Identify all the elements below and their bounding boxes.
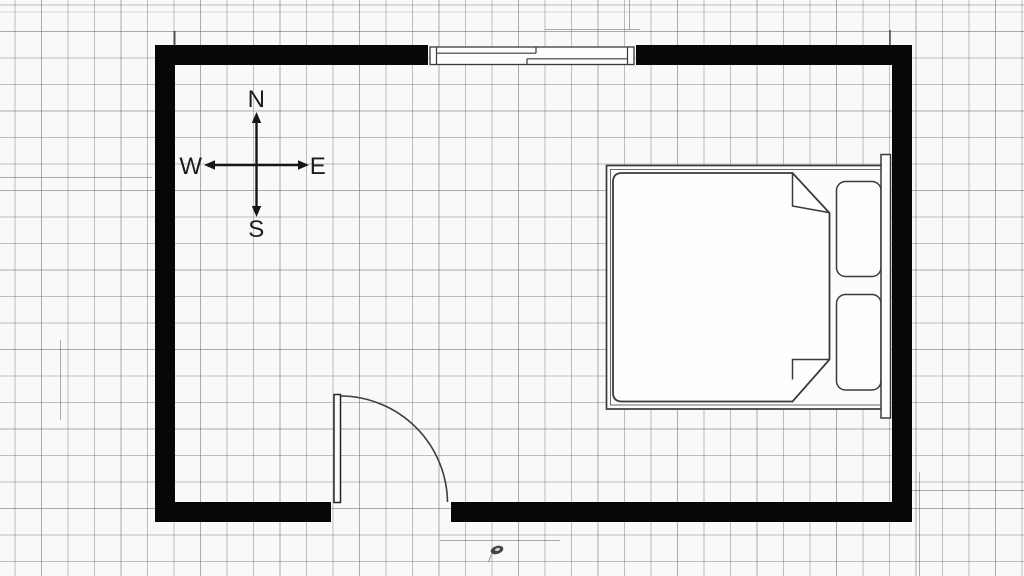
compass-label-north: N <box>248 86 266 113</box>
compass-arrow-east <box>298 160 309 169</box>
door-leaf <box>334 395 341 503</box>
wall-south-east-segment <box>451 502 912 522</box>
pillow-lower <box>837 295 882 391</box>
compass-rose: N S W E <box>179 86 326 243</box>
double-bed[interactable] <box>607 155 891 419</box>
wall-north-west-segment <box>155 45 428 65</box>
compass-label-east: E <box>310 153 327 180</box>
compass-arrow-west <box>204 160 215 169</box>
wall-south-west-segment <box>155 502 331 522</box>
window-north-sliding[interactable] <box>430 47 634 65</box>
pillow-upper <box>837 182 882 277</box>
ink-smudge-tail <box>489 554 493 562</box>
bed-headboard <box>881 155 891 419</box>
floorplan-drawing: N S W E <box>0 0 1024 576</box>
compass-arrow-north <box>252 112 261 123</box>
floorplan-canvas: N S W E <box>0 0 1024 576</box>
compass-label-south: S <box>248 216 265 243</box>
window-frame <box>430 47 634 65</box>
wall-west <box>155 45 175 522</box>
compass-label-west: W <box>179 153 202 180</box>
wall-north-east-segment <box>636 45 912 65</box>
wall-east <box>892 45 912 522</box>
ink-smudge <box>489 544 505 562</box>
door-south[interactable] <box>334 395 448 503</box>
door-swing-arc <box>341 396 448 502</box>
